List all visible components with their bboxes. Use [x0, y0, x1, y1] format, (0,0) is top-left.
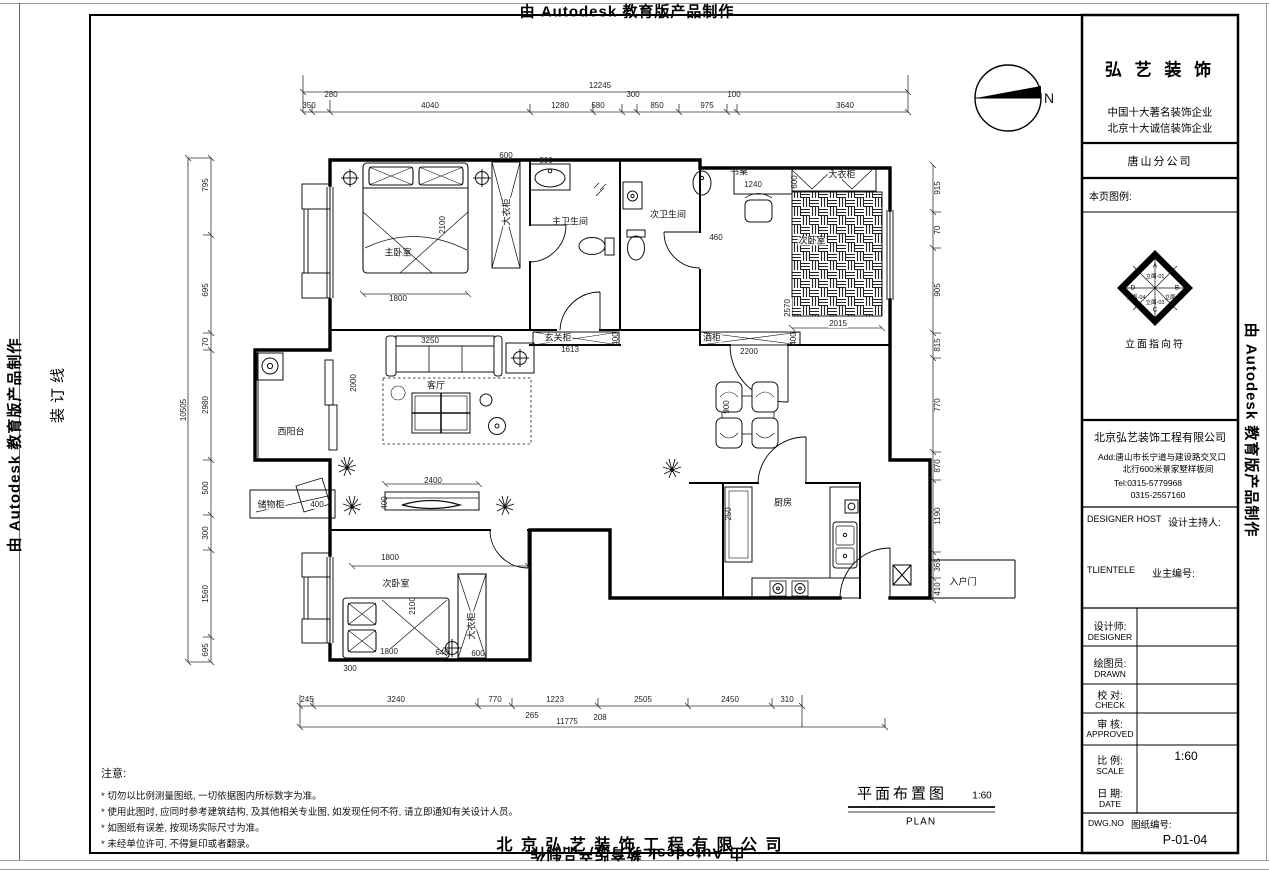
- dim-label: 2400: [424, 477, 442, 485]
- row-scale-cn: 比 例:: [1097, 752, 1123, 767]
- dim-seg: 100: [727, 91, 740, 99]
- dim-seg: 870: [934, 459, 942, 472]
- drawing-title-en: PLAN: [906, 817, 936, 828]
- elevation-letter-d: D: [1131, 285, 1136, 292]
- dim-seg: 1190: [934, 507, 942, 524]
- bedside-lamp-icon: [473, 169, 491, 187]
- dim-label: 1613: [561, 346, 579, 354]
- north-compass: [975, 65, 1041, 131]
- notes-item: * 未经单位许可, 不得复印或者翻录。: [101, 836, 255, 850]
- dim-seg: 4040: [421, 102, 439, 110]
- footer-title-lines: [848, 807, 995, 812]
- dim-total-left: 10505: [180, 399, 188, 421]
- designer-host-cn: 设计主持人:: [1168, 514, 1221, 529]
- second-bed: [343, 574, 486, 658]
- dim-label: 2100: [439, 216, 447, 234]
- dim-seg: 795: [202, 178, 210, 191]
- notes-item: * 如图纸有误差, 按现场实际尺寸为准。: [101, 820, 265, 834]
- dim-seg: 1560: [202, 585, 210, 603]
- dim-seg: 2505: [634, 696, 652, 704]
- dim-seg: 580: [591, 102, 604, 110]
- branch-name: 唐山分公司: [1128, 153, 1193, 169]
- legend-label: 本页图例:: [1089, 188, 1132, 203]
- dim-label: 300: [343, 665, 356, 673]
- dim-seg: 365: [934, 558, 942, 571]
- row-check-en: CHECK: [1095, 700, 1125, 710]
- brand-name: 弘 艺 装 饰: [1105, 56, 1215, 81]
- brand-slogan-1: 中国十大著名装饰企业: [1108, 105, 1213, 120]
- master-bed: [363, 163, 468, 273]
- bedside-lamp-icon: [341, 169, 359, 187]
- dim-label: 400: [309, 501, 324, 509]
- room-label-master-bath: 主卫生间: [552, 218, 588, 227]
- tv-cabinet: [385, 492, 479, 510]
- cad-sheet: { "watermark": "由 Autodesk 教育版产品制作", "bi…: [0, 0, 1269, 871]
- dim-seg: 300: [626, 91, 639, 99]
- company-address-2: 北行600米景家墅样板间: [1123, 463, 1214, 475]
- dim-label: 400: [612, 332, 620, 345]
- elevation-symbol: [1117, 250, 1193, 326]
- dim-label: 600: [499, 152, 512, 160]
- dim-label: 265: [525, 712, 538, 720]
- room-label-west-balcony: 西阳台: [277, 428, 304, 437]
- room-label-second-bath: 次卫生间: [650, 211, 686, 220]
- row-date-cn: 日 期:: [1097, 785, 1123, 800]
- dim-label: 400: [790, 332, 798, 345]
- dim-label: 900: [723, 400, 731, 413]
- dining-set: [716, 382, 778, 448]
- entry-door-label: 入户门: [949, 578, 976, 587]
- hallway-cabinets: [533, 332, 800, 345]
- designer-host-en: DESIGNER HOST: [1087, 514, 1162, 524]
- row-date-en: DATE: [1099, 799, 1121, 809]
- company-address-1: Add:唐山市长宁道与建设路交叉口: [1098, 451, 1226, 463]
- dwg-no-en: DWG.NO: [1088, 818, 1124, 828]
- dim-label: 208: [593, 714, 606, 722]
- dim-total-top: 12245: [589, 82, 611, 90]
- dim-label: 600: [471, 650, 484, 658]
- dim-seg: 770: [934, 398, 942, 411]
- dim-seg: 70: [934, 226, 942, 235]
- row-scale-en: SCALE: [1096, 766, 1124, 776]
- wardrobe-label: 大衣柜: [503, 197, 512, 226]
- dim-seg: 915: [934, 181, 942, 194]
- elevation-letter-b: B: [1175, 285, 1179, 292]
- room-label-tatami-bedroom: 次卧室: [797, 237, 826, 246]
- dim-seg: 300: [202, 526, 210, 539]
- row-drawn-en: DRAWN: [1094, 669, 1126, 679]
- dim-label: 800: [539, 157, 552, 165]
- row-designer-cn: 设计师:: [1094, 618, 1127, 633]
- dim-seg: 975: [700, 102, 713, 110]
- brand-slogan-2: 北京十大诚信装饰企业: [1108, 121, 1213, 136]
- elevation-symbol-caption: 立面指向符: [1125, 336, 1185, 351]
- storage-cabinet-label: 储物柜: [256, 501, 285, 510]
- dim-label: 1800: [389, 295, 407, 303]
- row-designer-en: DESIGNER: [1088, 632, 1132, 642]
- elevation-ref-2: 立面-02: [1165, 293, 1184, 301]
- dim-label: 1800: [379, 648, 399, 656]
- row-drawn-cn: 绘图员:: [1094, 655, 1127, 670]
- elevation-letter-c: C: [1153, 307, 1158, 314]
- dim-total-bottom: 11775: [556, 718, 578, 726]
- dim-label: 3250: [421, 337, 439, 345]
- company-tel-2: 0315-2557160: [1131, 490, 1186, 500]
- dim-seg: 850: [650, 102, 663, 110]
- row-approved-en: APPROVED: [1086, 729, 1133, 739]
- company-tel-1: Tel:0315-5779968: [1114, 478, 1182, 488]
- dim-seg: 2450: [721, 696, 739, 704]
- dim-label: 640: [435, 649, 448, 657]
- notes-title: 注意:: [101, 765, 126, 781]
- desk-label: 书桌: [730, 168, 748, 177]
- dwg-no-value: P-01-04: [1163, 833, 1207, 847]
- dim-seg: 70: [202, 338, 210, 347]
- wine-cabinet-label: 酒柜: [702, 334, 722, 343]
- wardrobe-label: 大衣柜: [827, 171, 856, 180]
- clientele-cn: 业主编号:: [1152, 565, 1195, 580]
- elevation-ref-1: 立面-01: [1146, 272, 1165, 280]
- master-bath-fixtures: [530, 164, 614, 255]
- dim-seg: 695: [202, 643, 210, 656]
- notes-item: * 切勿以比例测量图纸, 一切依据图内所标数字为准。: [101, 788, 322, 802]
- elevation-ref-3: 立面-03: [1146, 298, 1165, 306]
- drawing-scale: 1:60: [972, 791, 991, 802]
- dim-seg: 310: [780, 696, 793, 704]
- dim-label: 400: [381, 496, 389, 509]
- plant-icon: [343, 496, 361, 515]
- drawing-title: 平面布置图: [857, 783, 947, 804]
- dim-seg: 695: [202, 283, 210, 296]
- dim-label: 2000: [350, 374, 358, 392]
- room-label-second-bedroom: 次卧室: [382, 580, 409, 589]
- company-name: 北京弘艺装饰工程有限公司: [1094, 429, 1226, 445]
- dim-seg: 905: [934, 283, 942, 296]
- clientele-en: TLIENTELE: [1087, 565, 1135, 575]
- dim-seg: 280: [324, 91, 337, 99]
- room-label-master-bedroom: 主卧室: [384, 249, 411, 258]
- plant-icon: [338, 457, 356, 476]
- dim-label: 1240: [744, 181, 762, 189]
- room-label-kitchen: 厨房: [774, 499, 792, 508]
- elevation-letter-a: A: [1153, 263, 1157, 270]
- dim-seg: 500: [202, 481, 210, 494]
- dim-label: 1800: [381, 554, 399, 562]
- room-label-living: 客厅: [427, 382, 445, 391]
- living-room-furniture: [383, 336, 534, 444]
- side-table-lamp-icon: [511, 349, 529, 367]
- dim-seg: 3640: [836, 102, 854, 110]
- wardrobe-label: 大衣柜: [468, 611, 477, 640]
- dim-seg: 245: [300, 696, 313, 704]
- dim-label: 2015: [828, 320, 848, 328]
- footer-company: 北 京 弘 艺 装 饰 工 程 有 限 公 司: [497, 831, 784, 855]
- dim-label: 2570: [784, 298, 792, 318]
- dim-label: 2100: [409, 597, 417, 615]
- dim-seg: 815: [934, 338, 942, 351]
- dim-seg: 2980: [202, 396, 210, 414]
- dim-label: 250: [725, 507, 733, 520]
- notes-item: * 使用此图时, 应同时参考建筑结构, 及其他相关专业图, 如发现任何不符, 请…: [101, 804, 518, 818]
- dim-seg: 770: [488, 696, 501, 704]
- row-scale-value: 1:60: [1174, 749, 1197, 763]
- dim-label: 2200: [740, 348, 758, 356]
- dim-seg: 410: [934, 582, 942, 595]
- dwg-no-cn: 图纸编号:: [1131, 817, 1172, 831]
- dim-seg: 350: [302, 102, 315, 110]
- dim-label: 600: [791, 175, 799, 188]
- elevation-ref-4: 立面-04: [1127, 293, 1146, 301]
- north-label: N: [1044, 91, 1054, 105]
- floor-plan-svg: [0, 0, 1269, 871]
- dim-seg: 1223: [546, 696, 564, 704]
- kitchen-fixtures: [725, 487, 860, 598]
- dim-seg: 3240: [387, 696, 405, 704]
- entry-cabinet-label: 玄关柜: [543, 334, 572, 343]
- dim-label: 460: [709, 234, 722, 242]
- dim-seg: 1280: [551, 102, 569, 110]
- plant-icon: [663, 459, 681, 478]
- plant-icon: [496, 496, 514, 515]
